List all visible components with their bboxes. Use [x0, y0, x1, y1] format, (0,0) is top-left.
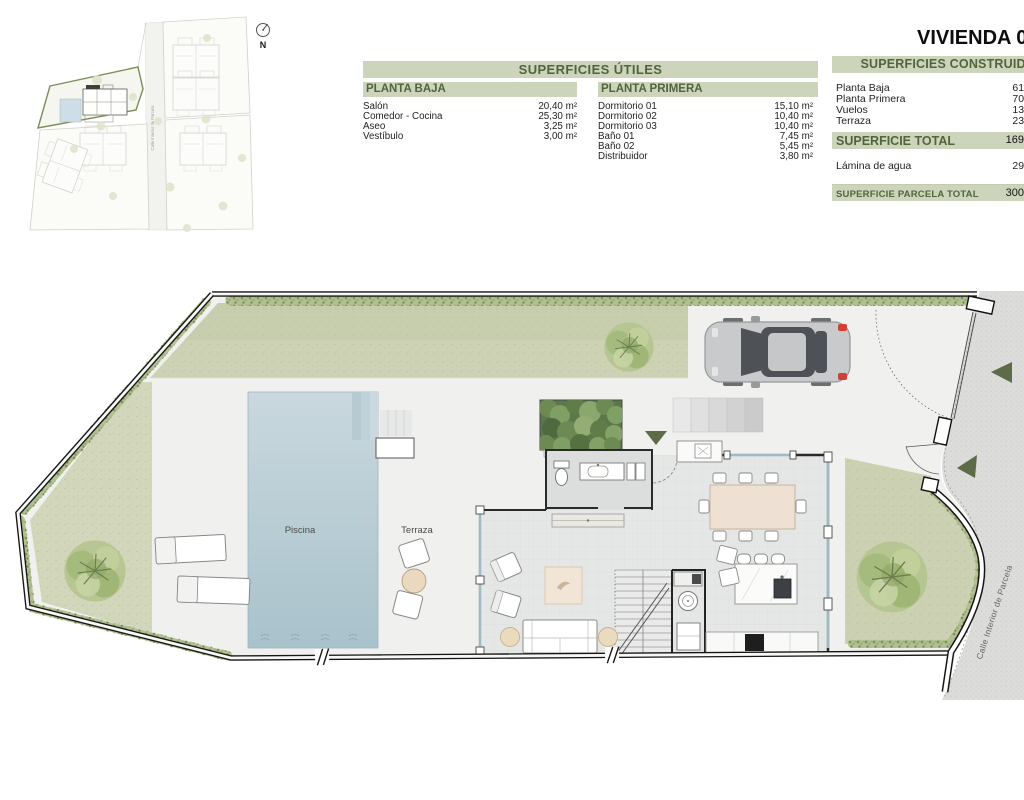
planta-primera-header: PLANTA PRIMERA [598, 82, 818, 97]
kitchen-counter [706, 632, 818, 653]
sun-lounger [177, 576, 250, 604]
site-plan: Calle Interior de Parcela N [10, 2, 330, 238]
armchair [719, 567, 740, 586]
superficies-construidas-table: SUPERFICIES CONSTRUIDAS Planta Baja61, P… [832, 56, 1024, 201]
pool-label: Piscina [285, 525, 316, 536]
wall-break-icon [605, 647, 620, 663]
superficie-total-row: SUPERFICIE TOTAL 169, [832, 132, 1024, 149]
stool [738, 554, 785, 564]
lamina-de-agua-row: Lámina de agua 29, [832, 160, 1024, 171]
toilet [554, 461, 569, 468]
wall-break-icon [315, 649, 330, 666]
north-compass-icon [257, 24, 270, 37]
planta-baja-header: PLANTA BAJA [363, 82, 577, 97]
floor-plan: Piscina Terraza Calle Interior de Parcel… [0, 278, 1024, 718]
site-street-label: Calle Interior de Parcela [150, 105, 155, 151]
north-label: N [260, 40, 267, 50]
car [705, 316, 850, 388]
staircase [615, 570, 672, 655]
sheet-title: VIVIENDA 0 [917, 27, 1024, 50]
table-row: Planta Baja61, [832, 82, 1024, 93]
rug [545, 567, 582, 604]
planta-baja-column: PLANTA BAJA Salón20,40 m² Comedor - Coci… [363, 78, 577, 142]
table-row: Planta Primera70, [832, 93, 1024, 104]
table-row: Distribuidor3,80 m² [598, 152, 818, 162]
side-table [599, 628, 618, 647]
island-sink [774, 579, 791, 598]
table-row: Vuelos13, [832, 104, 1024, 115]
terrace-table [402, 569, 426, 593]
tree [604, 322, 653, 371]
sun-lounger [155, 534, 226, 564]
terrace-label: Terraza [401, 525, 433, 536]
utiles-header: SUPERFICIES ÚTILES [363, 61, 818, 78]
table-row: Terraza23, [832, 115, 1024, 126]
tree [857, 542, 928, 613]
entry-steps [673, 398, 763, 432]
sofa [523, 620, 597, 653]
table-row: Vestíbulo3,00 m² [363, 132, 577, 142]
site-highlighted-parcel [38, 67, 143, 128]
pool-deck-pad [376, 438, 414, 458]
entry-counter [677, 441, 722, 462]
side-table [501, 628, 520, 647]
cooktop [745, 634, 764, 651]
superficies-utiles-table: SUPERFICIES ÚTILES PLANTA BAJA Salón20,4… [363, 61, 818, 78]
superficie-parcela-total-row: SUPERFICIE PARCELA TOTAL 300, [832, 184, 1024, 201]
construidas-header: SUPERFICIES CONSTRUIDAS [832, 56, 1024, 73]
entry-planter [537, 396, 625, 457]
planta-primera-column: PLANTA PRIMERA Dormitorio 0115,10 m² Dor… [598, 78, 818, 162]
tree [64, 540, 125, 601]
dining-table [710, 485, 795, 529]
